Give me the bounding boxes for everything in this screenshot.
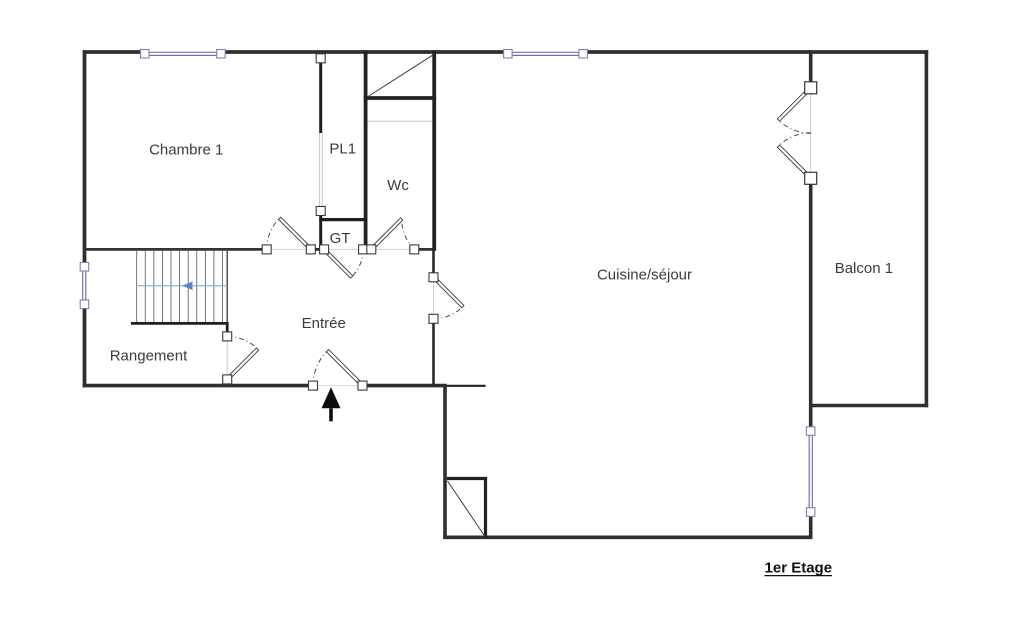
svg-text:GT: GT — [330, 230, 351, 247]
svg-text:Balcon 1: Balcon 1 — [835, 260, 893, 277]
svg-text:Rangement: Rangement — [110, 347, 188, 364]
svg-text:PL1: PL1 — [329, 141, 356, 158]
svg-text:Chambre 1: Chambre 1 — [149, 141, 223, 158]
svg-text:1er Etage: 1er Etage — [765, 559, 833, 576]
svg-text:Wc: Wc — [387, 177, 409, 194]
svg-text:Entrée: Entrée — [302, 315, 346, 332]
svg-text:Cuisine/séjour: Cuisine/séjour — [597, 267, 692, 284]
